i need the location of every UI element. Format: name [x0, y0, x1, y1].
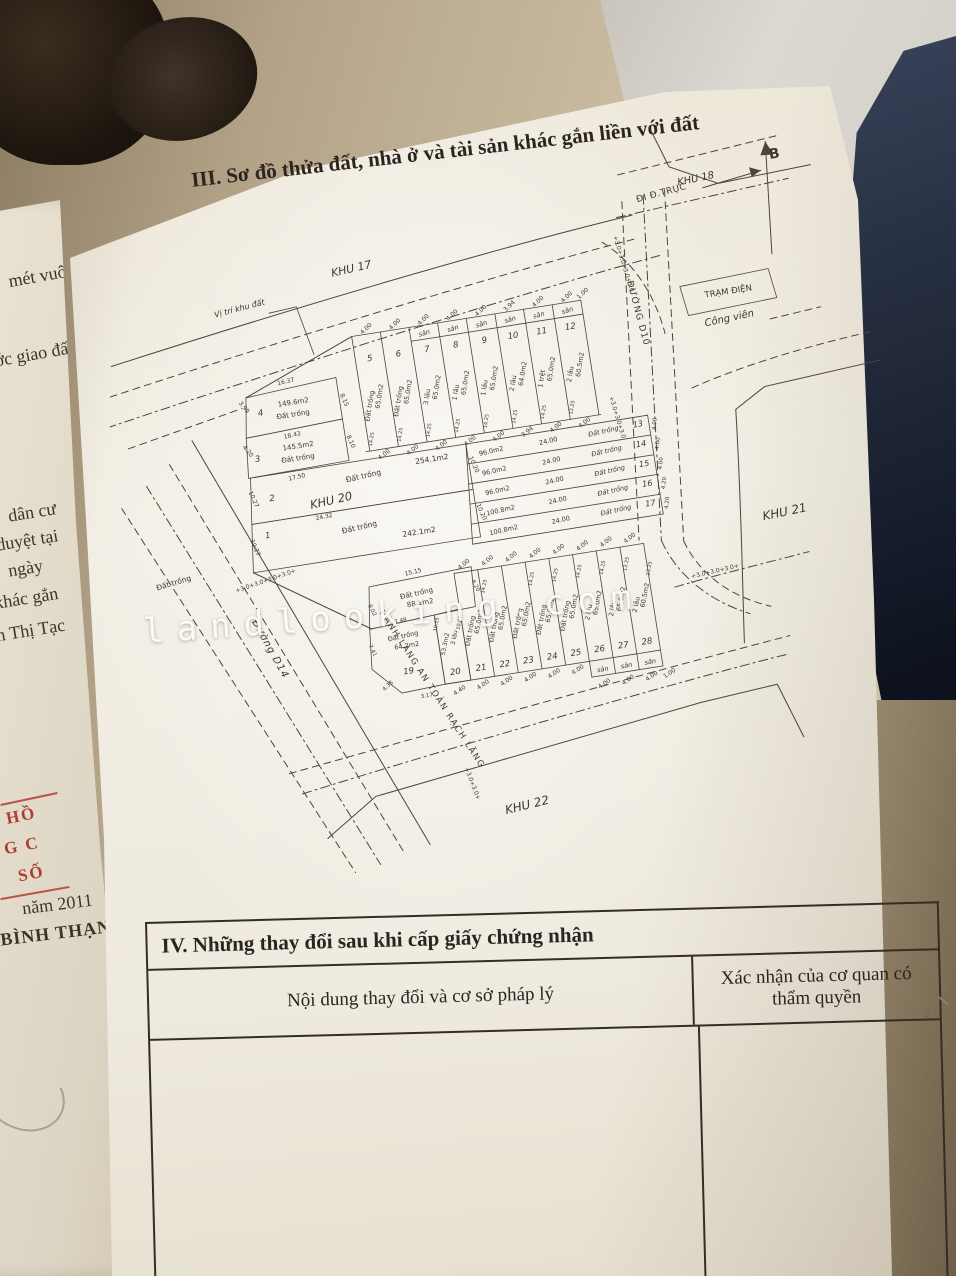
dim-label: 4.00: [621, 673, 636, 686]
map-line: [688, 331, 880, 388]
map-line: [246, 489, 481, 572]
san-label: sân: [561, 305, 574, 316]
san-label: sân: [597, 664, 610, 674]
dim-label: 15.15: [404, 567, 422, 578]
left-fragment: n Thị Tạc: [0, 615, 67, 647]
plot-number: 2: [269, 494, 276, 505]
dim-label: 24.00: [551, 514, 571, 526]
dim-label: 3.99: [237, 400, 251, 415]
stamp-text: G C: [2, 833, 41, 859]
plot-number: 1: [264, 531, 271, 542]
plot-number: 24: [546, 651, 558, 663]
map-line: [280, 636, 799, 774]
strip-area: 100.8m2: [485, 503, 515, 517]
map-line: [110, 255, 674, 428]
stamp-text: HỒ: [4, 803, 38, 828]
dim-label: 4.00: [547, 667, 562, 680]
plot-number: 11: [536, 326, 548, 338]
dim-label: 4.00: [480, 554, 495, 568]
plot-number: 8: [452, 340, 459, 351]
section4-table: IV. Những thay đổi sau khi cấp giấy chứn…: [145, 901, 953, 1276]
strip-use: Đất trống: [600, 503, 632, 518]
strip-use: Đất trống: [594, 463, 626, 478]
dim-label: 18.43: [283, 430, 301, 441]
strip-use: Đất trống: [597, 483, 629, 498]
strip-area: 96.0m2: [481, 464, 507, 477]
dim-label: 4.00: [504, 550, 519, 564]
dim-label: 4.00: [499, 674, 514, 687]
plot-number: 17: [645, 498, 657, 509]
dim-label: 4.20: [664, 496, 671, 509]
map-line: [125, 409, 245, 449]
plot-area: 242.1m2: [402, 525, 437, 539]
dim-label: 14.25: [551, 568, 560, 583]
dim-label: 4.40: [452, 684, 467, 697]
dim-label: 14.25: [454, 418, 462, 433]
plot-number: 9: [481, 335, 488, 346]
zone-label-khu22: KHU 22: [504, 793, 551, 817]
dim-label: 4.00: [644, 670, 659, 683]
plot-number: 27: [617, 640, 630, 652]
column-header-confirm: Xác nhận của cơ quan có thẩm quyền: [693, 950, 940, 1024]
san-label: sân: [475, 319, 488, 330]
left-fragment: ngày: [7, 555, 45, 581]
dim-label: 13.25: [646, 561, 654, 576]
plot-use: Đất trống: [341, 519, 378, 536]
plot-number: 25: [570, 648, 582, 660]
dim-label: 4.20: [241, 444, 255, 459]
tick-row: +3.0+3.0+: [463, 766, 482, 800]
dim-label: 4.00: [476, 678, 491, 691]
zone-label-khu21: KHU 21: [761, 500, 808, 523]
map-line: [239, 337, 358, 398]
dim-label: 10.27: [247, 490, 260, 509]
dim-label: 24.00: [548, 494, 568, 506]
dim-label: 14.25: [483, 414, 491, 429]
plot-number: 3: [254, 454, 261, 465]
san-label: sân: [620, 661, 633, 671]
map-line: [169, 438, 405, 882]
dim-label: 4.00: [597, 677, 612, 690]
plot-area: 254.1m2: [415, 452, 450, 466]
plot-number: 12: [564, 321, 576, 333]
site-label: Vị trí khu đất: [213, 296, 267, 319]
map-line: [651, 128, 811, 192]
dim-label: 24.00: [541, 455, 561, 467]
san-label: sân: [644, 657, 657, 667]
plot-number: 15: [638, 459, 649, 469]
table-body-left: [150, 1027, 710, 1276]
left-fragment: khác gắn: [0, 583, 60, 614]
dim-label: 13.25: [622, 556, 631, 571]
plot-area: 65.0m2: [459, 370, 471, 396]
plot-area: 65.0m2: [374, 383, 386, 409]
plot-number: 19: [403, 666, 415, 678]
dim-label: 1.00: [576, 286, 591, 300]
san-label: sân: [504, 314, 517, 325]
dim-label: 4.00: [528, 546, 543, 560]
dim-label: 14.25: [575, 564, 584, 579]
dim-label: 14.25: [599, 560, 608, 575]
dim-label: 4.00: [622, 531, 637, 545]
dim-label: 24.32: [315, 512, 333, 522]
strip-use: Đất trống: [591, 444, 623, 459]
san-label: sân: [532, 310, 545, 321]
strip-area: 100.8m2: [489, 523, 519, 537]
strip-area: 96.0m2: [484, 484, 510, 497]
dim-label: 14.25: [368, 432, 376, 447]
map-line: [269, 305, 314, 360]
tick-row: +3.0+3.0+3.0+3.0+: [235, 567, 297, 594]
san-label: sân: [446, 323, 459, 334]
dim-label: 14.25: [397, 427, 405, 442]
dim-label: 4.00: [457, 557, 472, 571]
dim-label: 4.00: [655, 437, 662, 450]
column-header-content: Nội dung thay đổi và cơ sở pháp lý: [148, 957, 695, 1039]
dim-label: 4.00: [570, 663, 585, 676]
table-body-right: [700, 1020, 951, 1276]
map-line: [110, 239, 645, 397]
dim-label: 4.00: [523, 671, 538, 684]
handwriting-squiggle: [0, 1048, 76, 1144]
map-line: [110, 215, 643, 366]
map-line: [315, 681, 808, 838]
map-line: [122, 481, 356, 899]
plot-area: 65.0m2: [402, 379, 414, 405]
tick-row: +3.0+3.0+3.0+3.0: [611, 235, 635, 293]
dim-label: 24.00: [538, 435, 558, 447]
dim-label: 4.00: [575, 539, 590, 553]
dim-label: 4.00: [651, 417, 658, 430]
map-line: [147, 460, 381, 892]
dim-label: 14.25: [540, 405, 548, 420]
plot-number: 26: [594, 644, 607, 656]
dim-label: 4.00: [551, 542, 566, 556]
plot-number: 20: [449, 667, 461, 679]
plot-area: 145.5m2: [282, 440, 314, 453]
plot-use: Đất trống: [345, 467, 382, 484]
plot-number: 10: [507, 330, 519, 342]
zone-label-khu20: KHU 20: [309, 489, 354, 512]
plot-number: 13: [632, 419, 643, 429]
plot-use: Đất trống: [281, 452, 315, 465]
plot-use: 3 lầu: [449, 629, 460, 645]
plot-number: 4: [257, 408, 264, 419]
map-line: [708, 409, 772, 643]
dim-label: 4.00: [658, 456, 665, 469]
map-line: [769, 307, 821, 319]
page-corner-mark: 5: [924, 1006, 930, 1021]
plot-area: 149.6m2: [277, 396, 309, 409]
plot-number: 7: [424, 344, 431, 355]
north-label: B: [768, 145, 781, 162]
cadastral-map: KHU 17KHU 18KHU 2024.32KHU 21KHU 22Đường…: [110, 128, 910, 918]
plot-use: Đất trống: [276, 408, 310, 421]
plot-area: 65.0m2: [488, 365, 500, 391]
dim-label: 7.41: [367, 644, 378, 658]
dim-label: 17.50: [288, 472, 306, 483]
plot-number: 14: [635, 439, 646, 449]
zone-label-khu17: KHU 17: [330, 258, 373, 280]
plot-number: 28: [641, 636, 654, 648]
dim-label: 13.25: [568, 400, 576, 415]
left-fragment: duyệt tại: [0, 525, 60, 556]
left-fragment: dân cư: [7, 498, 58, 526]
strip-use: Đất trống: [587, 424, 619, 439]
plot-number: 23: [522, 655, 534, 667]
dim-label: 14.25: [425, 423, 433, 438]
map-line: [293, 654, 797, 793]
plot-area: 64.0m2: [517, 361, 529, 387]
photo-of-land-certificate: mét vuông) ớc giao đất có dân cư duyệt t…: [0, 0, 956, 1276]
stamp-text: SỐ: [16, 862, 46, 887]
dim-label: 24.00: [545, 475, 565, 487]
tram-dien-label: TRẠM ĐIỆN: [703, 281, 753, 300]
san-label: sân: [418, 328, 431, 339]
plot-number: 5: [366, 354, 373, 365]
dim-label: 4.20: [661, 476, 668, 489]
plot-number: 6: [395, 349, 402, 360]
dim-label: 14.25: [511, 409, 519, 424]
plot-number: 22: [499, 659, 511, 671]
strip-area: 96.0m2: [478, 444, 504, 457]
plot-number: 16: [642, 478, 653, 488]
plot-number: 21: [475, 663, 487, 675]
cong-vien-label: Công viên: [704, 307, 756, 329]
plot-area: 65.0m2: [431, 374, 443, 400]
plot-area: 60.5m2: [574, 352, 586, 378]
dim-label: 10.27: [248, 539, 261, 558]
dim-label: 4.00: [599, 535, 614, 549]
plot-area: 65.0m2: [545, 356, 557, 382]
road-label-di-truc: ĐI Đ.TRỤC: [635, 182, 687, 205]
map-line: [732, 360, 884, 409]
